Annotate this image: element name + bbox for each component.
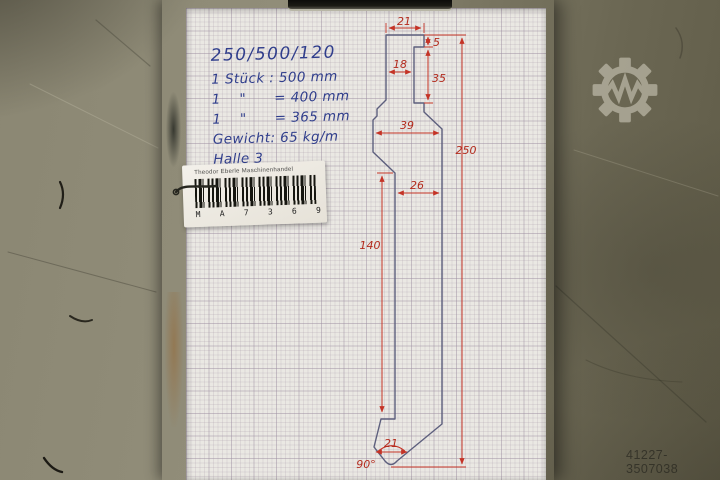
gear-m-icon [589,53,661,127]
note-line: Gewicht: 65 kg/m [213,126,351,150]
clipboard-clip [288,0,452,11]
clipboard-dark-spot [166,92,181,167]
note-title: 250/500/120 [210,42,348,66]
watermark-id: 41227-3507038 [626,448,720,476]
handwritten-notes: 250/500/120 1 Stück : 500 mm 1 " = 400 m… [210,42,351,170]
tag-wire [170,176,222,202]
clipboard-worn-patch [165,292,183,427]
